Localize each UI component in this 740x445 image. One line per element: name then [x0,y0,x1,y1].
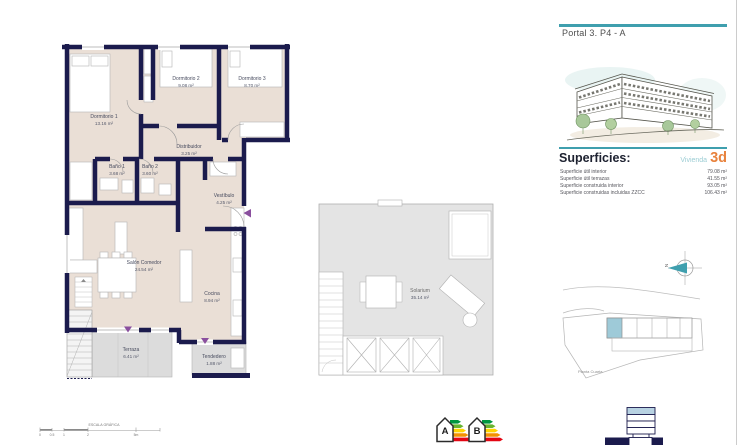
vivienda-label: Vivienda [680,157,707,164]
scale-tick: 2 [87,433,89,437]
room-label-cocina: Cocina 8.94 m² [204,291,220,303]
room-label-solarium: Solarium 35.14 m² [410,288,430,300]
room-label-salon-comedor: Salón Comedor 24.54 m² [127,260,162,272]
room-label-tendedero: Tendedero 1.88 m² [202,354,226,366]
energy-letter-a: A [438,426,452,437]
superficies-heading: Superficies: [559,151,631,165]
building-section-icon [605,408,663,445]
scale-bar-title: ESCALA GRÁFICA [89,423,120,427]
surface-row: Superficie construida interior93.05 m² [560,183,727,189]
panel-top-rule [559,24,727,27]
interior-steps [75,277,92,307]
site-plan [563,251,703,378]
vivienda-code-value: 3d [710,150,727,166]
communal-staircase [67,310,92,379]
room-label-distribuidor: Distribuidor 3.25 m² [176,144,201,156]
scale-tick: 0.5 [50,433,55,437]
scale-tick: 0 [39,433,41,437]
portal-title: Portal 3. P4 - A [562,28,626,38]
north-compass-icon [668,251,702,285]
room-label-bano-2: Baño 2 3.60 m² [142,164,158,176]
scale-tick: 5m [134,433,139,437]
surface-row: Superficie construidas incluidas ZZCC106… [560,190,727,196]
room-label-terraza: Terraza 6.41 m² [123,347,140,359]
room-label-dormitorio-3: Dormitorio 3 8.70 m² [238,76,265,88]
vivienda-code: Vivienda3d [680,149,727,167]
room-label-dormitorio-2: Dormitorio 2 9.08 m² [172,76,199,88]
roof-plan [319,200,493,375]
north-label: N [664,264,669,267]
surface-row: Superficie útil terrazas41.55 m² [560,176,727,182]
scale-bar [40,428,160,433]
plan-sheet-graphics [0,0,740,445]
room-label-dormitorio-1: Dormitorio 1 13.16 m² [90,114,117,126]
room-label-vestibulo: Vestíbulo 4.25 m² [214,193,235,205]
energy-letter-b: B [470,426,484,437]
scale-tick: 1 [63,433,65,437]
floor-plan [62,44,290,379]
room-label-bano-1: Baño 1 3.68 m² [109,164,125,176]
surface-row: Superficie útil interior79.08 m² [560,169,727,175]
site-plan-caption: Planta Cuarta [578,369,602,374]
building-sketch [565,67,726,143]
highlighted-unit [607,318,622,338]
